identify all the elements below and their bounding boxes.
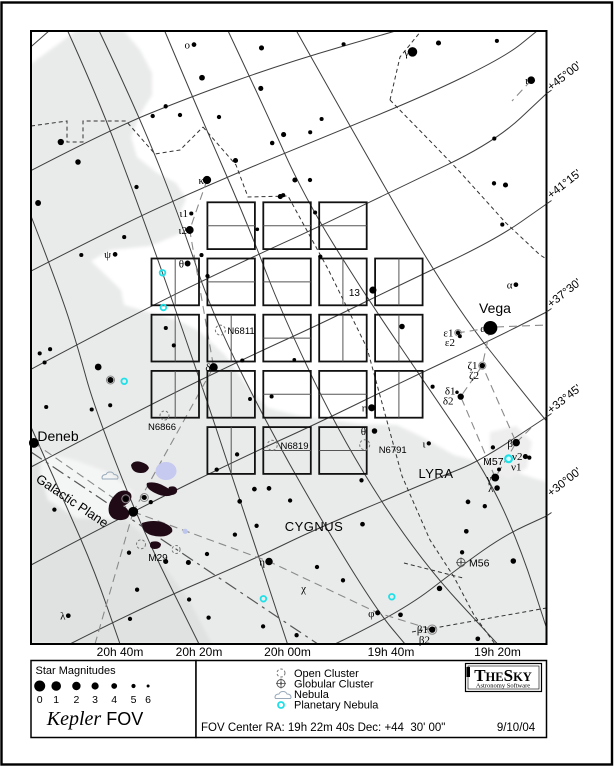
svg-text:LYRA: LYRA xyxy=(419,466,454,481)
svg-text:20h 20m: 20h 20m xyxy=(176,645,223,659)
svg-text:κ: κ xyxy=(198,175,204,187)
svg-text:0: 0 xyxy=(37,694,43,706)
svg-text:α: α xyxy=(507,280,513,292)
svg-text:χ: χ xyxy=(300,583,306,595)
svg-text:α: α xyxy=(480,323,486,335)
svg-text:ν1: ν1 xyxy=(511,462,521,474)
svg-text:ο: ο xyxy=(185,40,191,52)
svg-text:ι: ι xyxy=(423,439,426,451)
svg-text:4: 4 xyxy=(111,694,117,706)
svg-text:η: η xyxy=(362,403,368,415)
svg-text:N6819: N6819 xyxy=(281,441,309,452)
svg-text:ψ: ψ xyxy=(104,249,111,261)
svg-text:CYGNUS: CYGNUS xyxy=(285,519,344,534)
svg-text:δ2: δ2 xyxy=(443,396,454,408)
svg-text:γ: γ xyxy=(403,47,409,59)
svg-text:3: 3 xyxy=(92,694,98,706)
svg-text:ζ2: ζ2 xyxy=(469,370,479,382)
svg-text:Vega: Vega xyxy=(479,300,511,316)
svg-text:ι1: ι1 xyxy=(180,208,188,220)
svg-text:20h 40m: 20h 40m xyxy=(97,645,144,659)
svg-text:9/10/04: 9/10/04 xyxy=(497,722,536,734)
svg-text:5: 5 xyxy=(131,694,137,706)
svg-text:M29: M29 xyxy=(148,553,168,564)
svg-text:δ: δ xyxy=(205,362,210,374)
svg-text:20h 00m: 20h 00m xyxy=(264,645,311,659)
svg-text:Deneb: Deneb xyxy=(37,428,78,444)
svg-text:N6791: N6791 xyxy=(379,445,407,456)
svg-text:FOV Center RA: 19h 22m 40s Dec: FOV Center RA: 19h 22m 40s Dec: +44 30' … xyxy=(201,722,445,734)
svg-text:λ: λ xyxy=(488,483,494,495)
svg-text:2: 2 xyxy=(73,694,79,706)
svg-text:ι: ι xyxy=(525,75,528,87)
svg-text:β: β xyxy=(507,438,513,450)
svg-text:φ: φ xyxy=(368,608,374,620)
svg-text:Planetary Nebula: Planetary Nebula xyxy=(294,700,379,712)
svg-text:θ: θ xyxy=(361,426,366,438)
svg-text:N6866: N6866 xyxy=(148,422,176,433)
svg-text:θ: θ xyxy=(179,258,184,270)
svg-text:Astronomy Software: Astronomy Software xyxy=(476,683,530,690)
svg-text:19h 20m: 19h 20m xyxy=(474,645,521,659)
svg-text:N6811: N6811 xyxy=(227,326,254,337)
svg-text:19h 40m: 19h 40m xyxy=(368,645,415,659)
svg-text:Kepler FOV: Kepler FOV xyxy=(46,708,143,730)
svg-text:6: 6 xyxy=(145,694,151,706)
svg-text:13: 13 xyxy=(349,288,361,299)
svg-text:ι2: ι2 xyxy=(179,225,187,237)
svg-text:1: 1 xyxy=(53,694,59,706)
svg-text:λ: λ xyxy=(60,611,66,623)
svg-text:Star Magnitudes: Star Magnitudes xyxy=(36,665,117,677)
svg-text:ε2: ε2 xyxy=(445,337,455,349)
svg-text:M57: M57 xyxy=(483,456,504,468)
svg-text:M56: M56 xyxy=(469,557,490,569)
svg-text:η: η xyxy=(259,556,265,568)
